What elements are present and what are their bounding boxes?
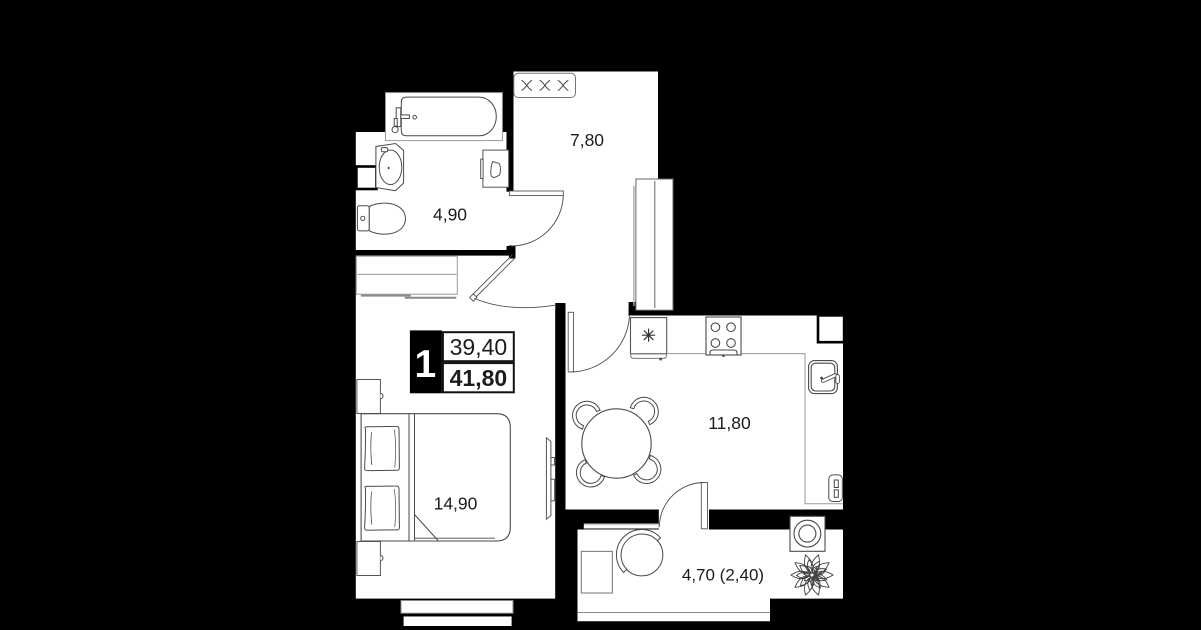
svg-text:1: 1 — [414, 343, 436, 386]
svg-text:14,90: 14,90 — [434, 494, 478, 514]
svg-text:4,70 (2,40): 4,70 (2,40) — [682, 565, 764, 584]
svg-text:7,80: 7,80 — [570, 130, 604, 150]
svg-text:41,80: 41,80 — [450, 365, 508, 391]
svg-text:11,80: 11,80 — [708, 413, 751, 433]
svg-text:39,40: 39,40 — [450, 334, 508, 360]
svg-text:4,90: 4,90 — [433, 205, 467, 225]
